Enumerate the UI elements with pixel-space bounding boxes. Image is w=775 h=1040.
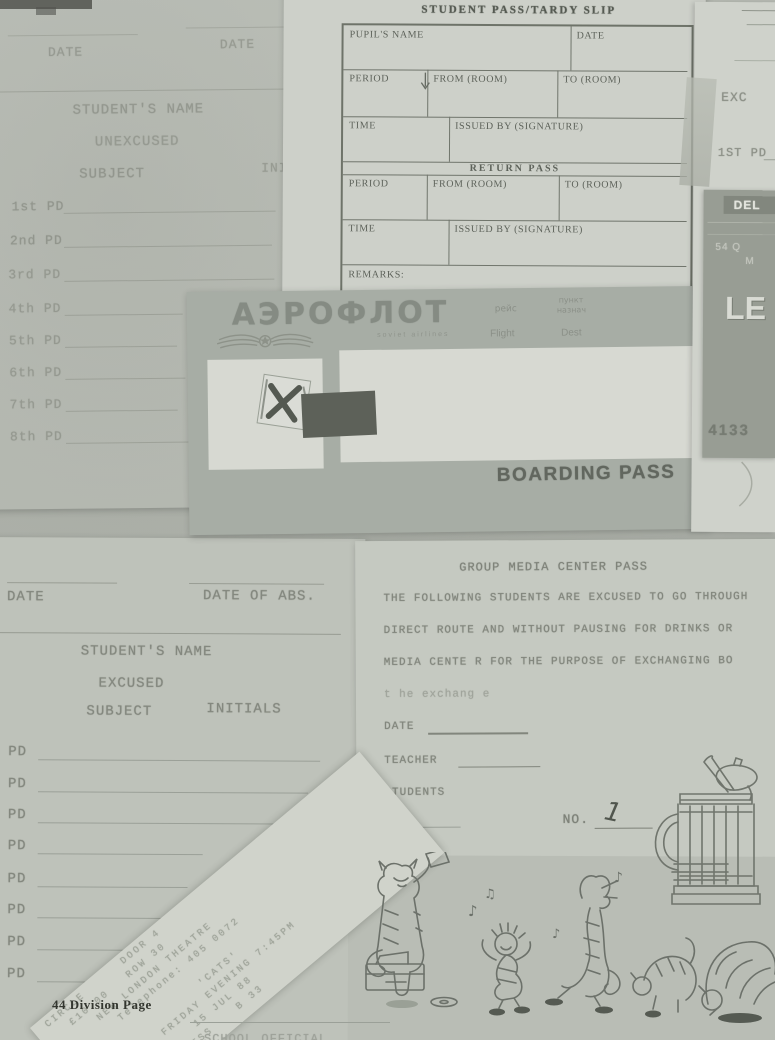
tardy-slip-title: STUDENT PASS/TARDY SLIP <box>379 3 659 16</box>
table-rule <box>343 69 687 72</box>
status-label: UNEXCUSED <box>95 134 180 151</box>
table-rule <box>449 117 450 162</box>
period-row-label: 3rd PD <box>8 267 61 283</box>
tardy-slip-table: PUPIL'S NAME DATE PERIOD FROM (ROOM) TO … <box>340 23 693 299</box>
dest-label-ru2: назнач <box>557 305 586 314</box>
period-row-label: PD <box>7 966 26 982</box>
dark-ticket-big-text: LE <box>725 290 766 327</box>
from-room2-label: FROM (ROOM) <box>433 179 507 190</box>
exc-label: EXC <box>721 90 748 105</box>
teacher-label: TEACHER <box>384 755 437 767</box>
rule-line <box>0 88 292 92</box>
svg-text:♫: ♫ <box>484 887 496 902</box>
to-room-label: TO (ROOM) <box>563 74 621 85</box>
time-label: TIME <box>349 120 376 131</box>
subject-label: SUBJECT <box>86 704 152 720</box>
period-row-line <box>64 245 272 248</box>
media-pass-body-line: DIRECT ROUTE AND WITHOUT PAUSING FOR DRI… <box>384 622 775 637</box>
period-row-line <box>65 314 183 316</box>
period-row-line <box>65 378 185 380</box>
date-label-left: DATE <box>48 45 83 60</box>
date-label: DATE <box>577 30 605 41</box>
rule-line <box>186 27 286 29</box>
no-label: NO. <box>563 812 589 827</box>
tardy-slip-sheet: STUDENT PASS/TARDY SLIP PUPIL'S NAME DAT… <box>282 0 706 305</box>
period-row-line <box>66 410 178 412</box>
flight-label-ru: рейс <box>495 304 517 314</box>
media-pass-body-line: MEDIA CENTE R FOR THE PURPOSE OF EXCHANG… <box>384 654 775 669</box>
period2-label: PERIOD <box>349 178 389 189</box>
issued-by-label: ISSUED BY (SIGNATURE) <box>455 121 583 133</box>
boarding-pass: АЭРОФЛОТ soviet airlines рейс Flight пун… <box>187 286 710 535</box>
period-row-label: PD <box>7 934 26 950</box>
period-row-line <box>66 442 192 444</box>
date-label: DATE <box>7 589 45 605</box>
calvin-dancing-figure <box>482 923 530 1016</box>
period-row-label: PD <box>8 807 27 823</box>
period-row-line <box>38 853 203 855</box>
students-name-label: STUDENT'S NAME <box>81 643 213 660</box>
bent-tiger-figure <box>699 942 775 1023</box>
rule-line <box>0 632 341 635</box>
return-pass-label: RETURN PASS <box>343 162 687 175</box>
boarding-pass-title: BOARDING PASS <box>497 462 676 487</box>
period-row-label: PD <box>8 838 27 854</box>
rule-line <box>707 234 775 235</box>
scrapbook-page: DATE DATE STUDENT'S NAME UNEXCUSED SUBJE… <box>0 0 775 1040</box>
beer-stein-drawing <box>638 748 770 914</box>
svg-text:♪: ♪ <box>552 927 560 942</box>
period-row-label: 2nd PD <box>10 233 63 249</box>
table-rule <box>427 175 428 220</box>
rule-line <box>189 583 324 585</box>
hobbes-dancing-figure <box>367 852 449 1008</box>
period-row-label: PD <box>8 871 27 887</box>
record-player-drawing <box>366 952 457 1007</box>
issued-by2-label: ISSUED BY (SIGNATURE) <box>455 224 583 236</box>
table-rule <box>448 220 449 265</box>
pass-white-window-right <box>339 346 695 462</box>
dark-ticket-line2: M <box>745 256 753 267</box>
scan-edge-corner <box>36 7 56 15</box>
table-rule <box>559 175 560 220</box>
svg-text:♪: ♪ <box>614 870 623 886</box>
period-row-label: 5th PD <box>9 333 62 349</box>
initials-label: INITIALS <box>206 701 281 717</box>
period-row-label: PD <box>8 744 27 760</box>
prancing-tiger-figure <box>631 938 696 1018</box>
airline-subtitle: soviet airlines <box>377 331 450 339</box>
period-row-label: PD <box>8 776 27 792</box>
first-pd-label: 1ST PD <box>718 146 767 160</box>
rule-line <box>742 10 775 11</box>
period-row-label: 7th PD <box>10 397 63 413</box>
table-rule <box>557 70 558 117</box>
flight-label-en: Flight <box>490 328 515 339</box>
dark-label-block <box>301 391 377 438</box>
pen-curve-mark <box>731 460 761 510</box>
period-row-line <box>64 211 276 214</box>
table-rule <box>570 26 571 70</box>
aeroflot-wings-icon <box>215 331 315 354</box>
time2-label: TIME <box>349 223 376 234</box>
period-row-label: 4th PD <box>9 301 62 317</box>
period-row-line <box>64 279 274 282</box>
period-row-line <box>38 886 188 888</box>
rule-line <box>8 34 138 36</box>
dark-ticket: DEL 54 Q M LE 4133 <box>702 190 775 458</box>
status-label: EXCUSED <box>99 676 165 692</box>
pupils-name-label: PUPIL'S NAME <box>350 29 424 40</box>
media-pass-body-line: t he exchang e <box>384 688 490 701</box>
period-row-label: 6th PD <box>9 365 62 381</box>
rule-line <box>747 24 775 25</box>
dark-ticket-number: 4133 <box>708 422 749 439</box>
students-name-label: STUDENT'S NAME <box>72 101 204 118</box>
period-row-line <box>38 791 308 793</box>
signature-label-partial: SCHOOL OFFICIAL <box>204 1032 327 1040</box>
dest-label-ru1: пункт <box>559 295 584 304</box>
period-row-label: 1st PD <box>11 199 64 215</box>
fill-in-line <box>764 159 775 160</box>
from-room-label: FROM (ROOM) <box>433 74 507 85</box>
singing-tiger-figure <box>545 876 620 1014</box>
period-row-label: PD <box>7 902 26 918</box>
dest-label-en: Dest <box>561 327 582 338</box>
page-caption: 44 Division Page <box>52 997 152 1013</box>
remarks-label: REMARKS: <box>348 269 404 280</box>
period-row-line <box>38 759 320 761</box>
date-label-right: DATE <box>220 37 255 52</box>
period-row-line <box>65 346 177 348</box>
media-pass-body-line: THE FOLLOWING STUDENTS ARE EXCUSED TO GO… <box>383 590 775 605</box>
to-room2-label: TO (ROOM) <box>565 179 623 190</box>
period-row-label: 8th PD <box>10 429 63 445</box>
airline-wordmark: АЭРОФЛОТ <box>232 295 450 333</box>
table-rule <box>343 219 687 222</box>
period-row-line <box>38 822 298 824</box>
fill-in-line <box>458 766 540 767</box>
date-label: DATE <box>384 721 414 733</box>
rule-line <box>734 60 775 61</box>
table-rule <box>343 116 687 119</box>
down-arrow-icon <box>419 72 431 94</box>
period-label: PERIOD <box>349 73 389 84</box>
fill-in-line <box>428 732 528 735</box>
rule-line <box>708 222 775 223</box>
handwritten-number: 1 <box>602 796 624 829</box>
date-of-abs-label: DATE OF ABS. <box>203 588 316 605</box>
media-pass-title: GROUP MEDIA CENTER PASS <box>459 560 648 575</box>
dark-ticket-header: DEL <box>734 198 761 212</box>
rule-line <box>7 582 117 584</box>
dark-ticket-line1: 54 Q <box>715 242 741 253</box>
subject-label: SUBJECT <box>79 166 145 183</box>
svg-text:♪: ♪ <box>468 902 478 920</box>
table-rule <box>342 264 686 267</box>
